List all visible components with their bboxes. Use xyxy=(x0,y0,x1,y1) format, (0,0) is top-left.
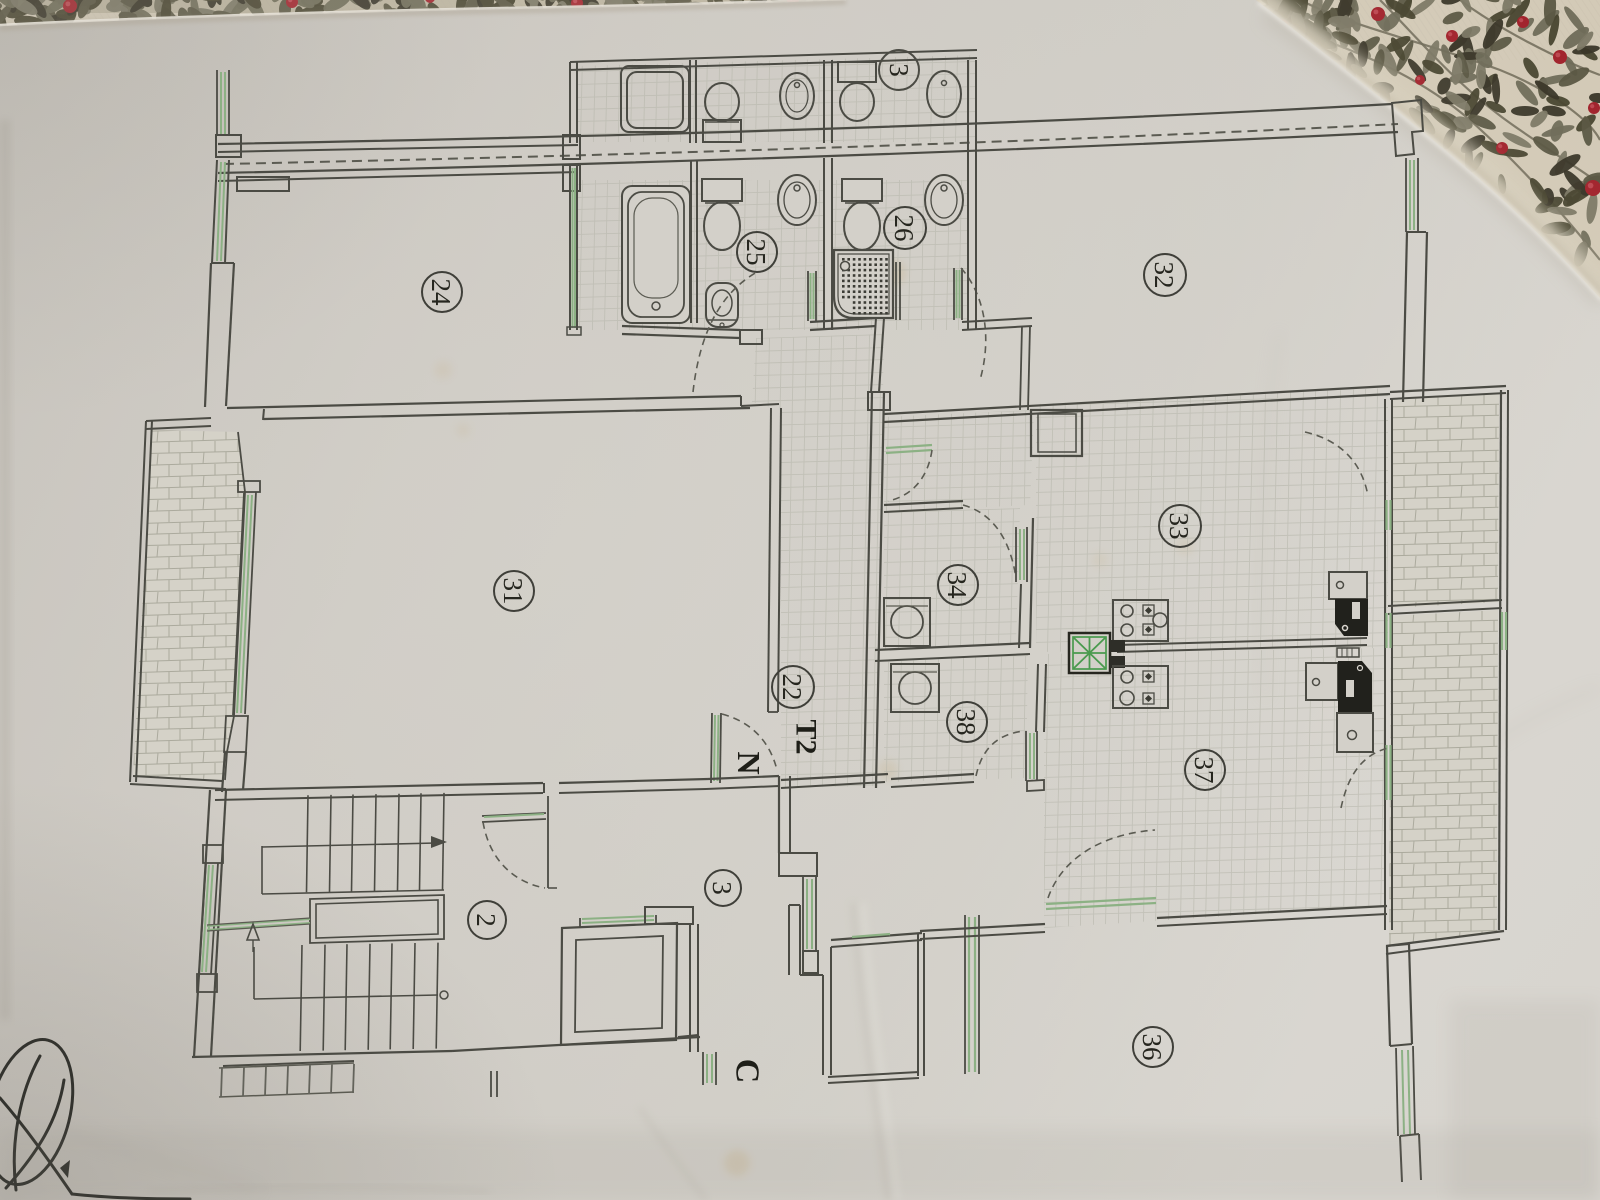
svg-text:22: 22 xyxy=(777,674,807,701)
svg-text:37: 37 xyxy=(1189,757,1219,784)
svg-text:33: 33 xyxy=(1164,513,1194,540)
svg-text:26: 26 xyxy=(889,215,919,242)
svg-text:38: 38 xyxy=(951,709,981,736)
svg-text:T2: T2 xyxy=(790,719,823,754)
svg-text:C: C xyxy=(729,1059,766,1084)
svg-text:25: 25 xyxy=(741,239,771,266)
svg-text:34: 34 xyxy=(942,572,972,600)
svg-text:36: 36 xyxy=(1137,1034,1167,1061)
svg-text:N: N xyxy=(731,751,767,774)
svg-text:31: 31 xyxy=(498,578,528,605)
svg-text:2: 2 xyxy=(471,913,501,927)
svg-text:24: 24 xyxy=(426,279,456,307)
svg-text:32: 32 xyxy=(1149,262,1179,289)
svg-text:3: 3 xyxy=(707,881,737,895)
svg-text:3: 3 xyxy=(884,63,914,77)
